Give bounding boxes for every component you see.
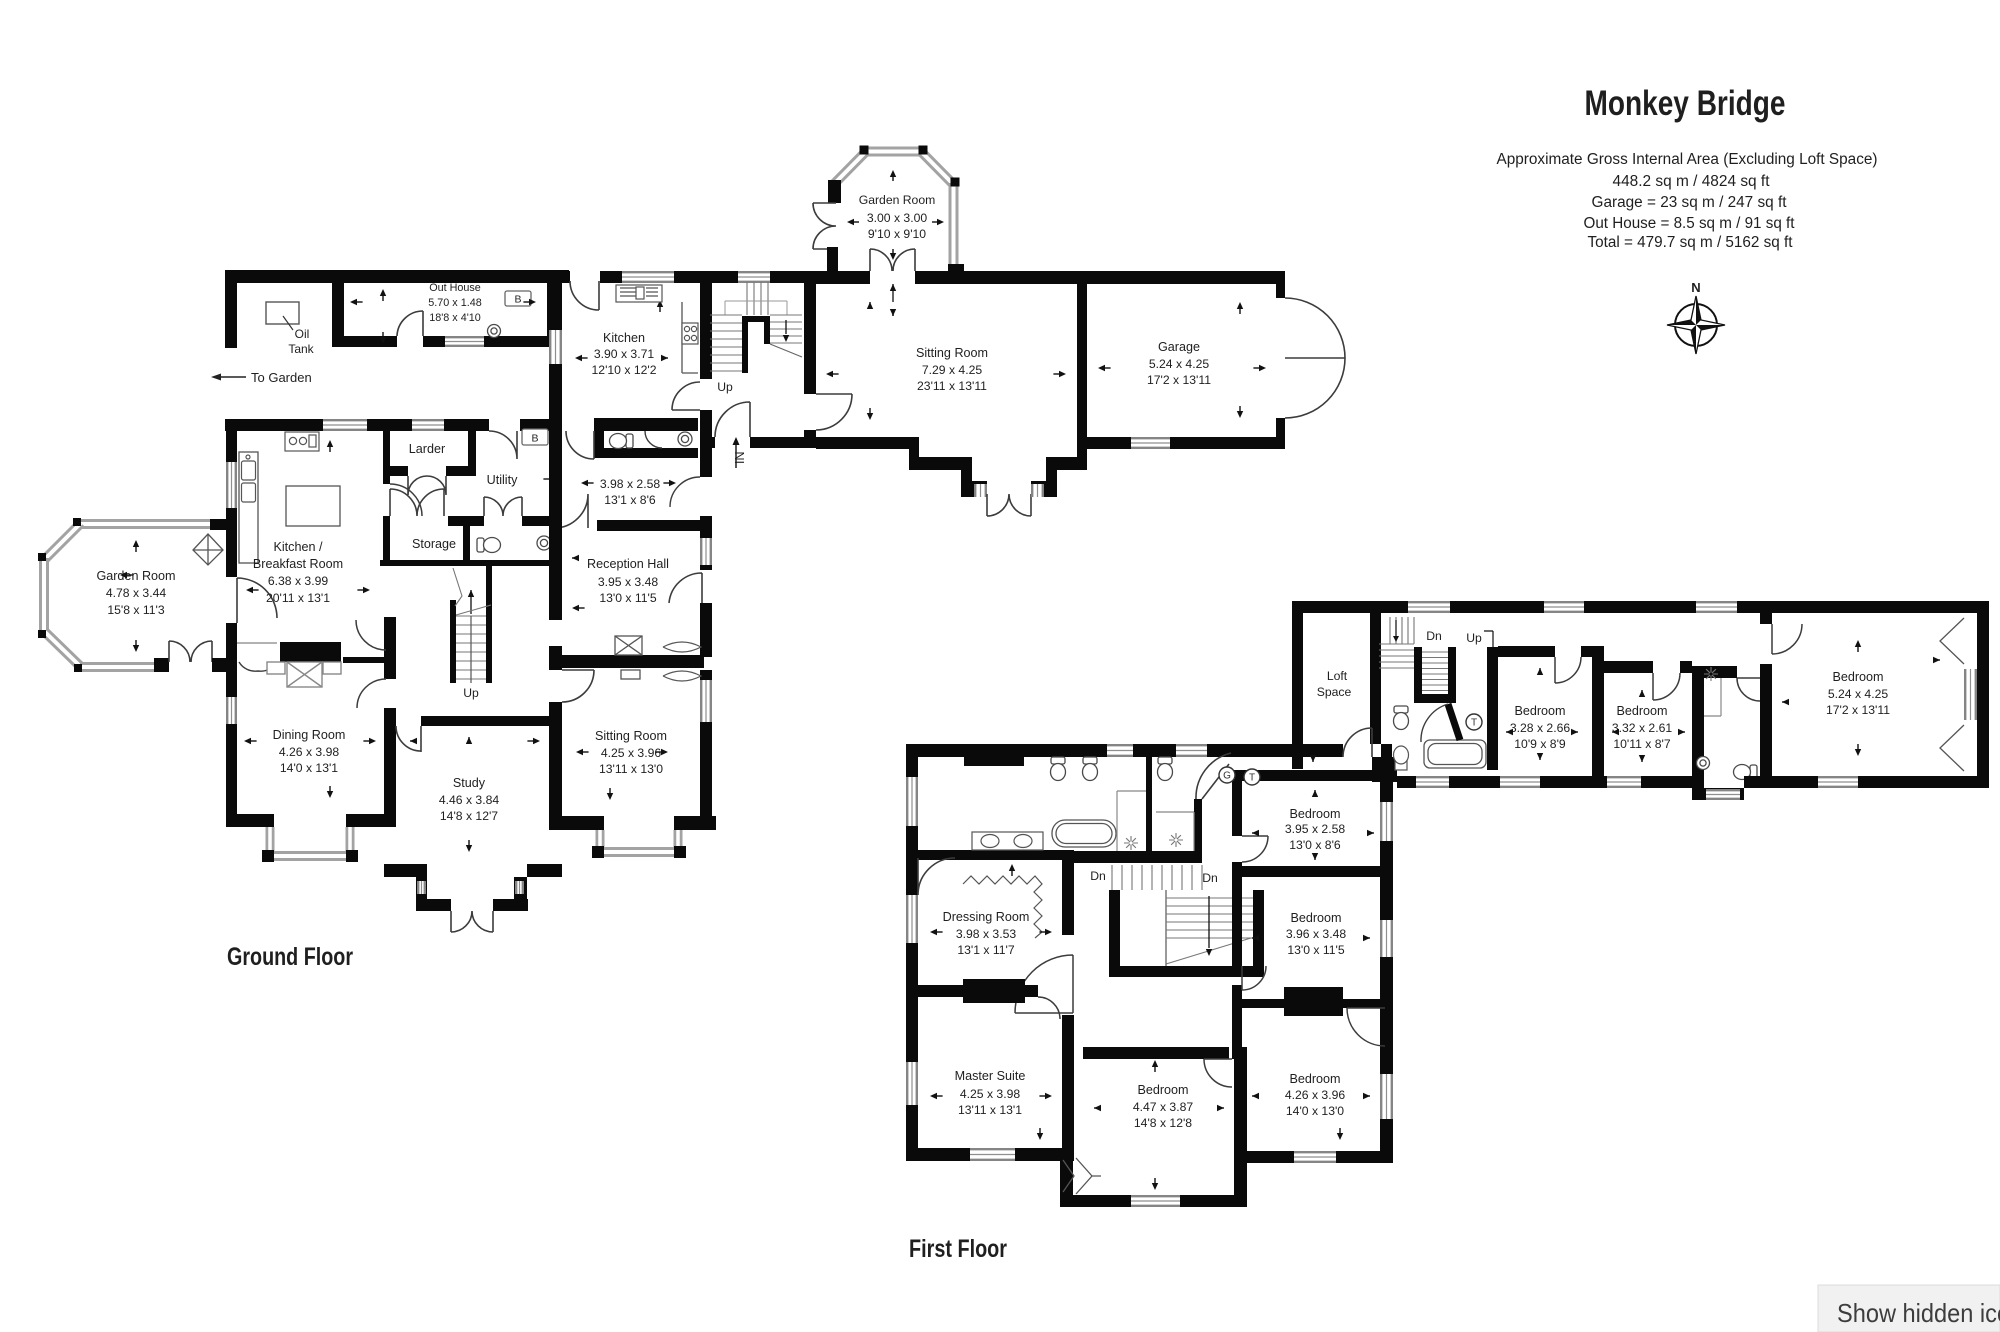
- svg-text:17'2 x 13'11: 17'2 x 13'11: [1826, 703, 1890, 717]
- svg-text:Sitting Room: Sitting Room: [595, 729, 667, 743]
- svg-text:3.95 x 2.58: 3.95 x 2.58: [1285, 822, 1346, 836]
- svg-text:Dn: Dn: [1426, 629, 1442, 643]
- svg-text:Kitchen /: Kitchen /: [273, 540, 323, 554]
- svg-text:9'10 x 9'10: 9'10 x 9'10: [868, 227, 926, 241]
- svg-text:IN: IN: [733, 452, 747, 465]
- svg-text:3.32 x 2.61: 3.32 x 2.61: [1612, 721, 1673, 735]
- svg-text:First Floor: First Floor: [909, 1235, 1007, 1263]
- svg-text:6.38 x 3.99: 6.38 x 3.99: [268, 574, 329, 588]
- svg-text:Bedroom: Bedroom: [1289, 1072, 1340, 1086]
- svg-text:To Garden: To Garden: [251, 370, 312, 385]
- svg-text:23'11 x 13'11: 23'11 x 13'11: [917, 379, 987, 393]
- svg-text:G: G: [1223, 771, 1231, 782]
- svg-text:Study: Study: [453, 776, 486, 790]
- svg-text:Bedroom: Bedroom: [1137, 1083, 1188, 1097]
- svg-text:Bedroom: Bedroom: [1289, 807, 1340, 821]
- svg-text:Garage = 23 sq m / 247 sq ft: Garage = 23 sq m / 247 sq ft: [1592, 194, 1788, 211]
- svg-text:Dn: Dn: [1090, 869, 1106, 883]
- svg-text:Oil: Oil: [295, 327, 310, 341]
- svg-text:Larder: Larder: [409, 442, 445, 456]
- svg-text:Master Suite: Master Suite: [955, 1069, 1026, 1083]
- svg-text:Garage: Garage: [1158, 340, 1200, 354]
- svg-text:Loft: Loft: [1327, 669, 1348, 683]
- svg-text:5.24 x 4.25: 5.24 x 4.25: [1149, 357, 1210, 371]
- svg-text:20'11 x 13'1: 20'11 x 13'1: [266, 591, 330, 605]
- svg-text:Space: Space: [1317, 685, 1352, 699]
- svg-text:15'8 x 11'3: 15'8 x 11'3: [107, 603, 165, 617]
- svg-text:13'11 x 13'1: 13'11 x 13'1: [958, 1103, 1022, 1117]
- svg-text:Dn: Dn: [1202, 871, 1218, 885]
- svg-text:Up: Up: [463, 686, 479, 700]
- svg-text:Dining Room: Dining Room: [273, 728, 346, 742]
- svg-text:Out House = 8.5 sq m / 91 sq f: Out House = 8.5 sq m / 91 sq ft: [1584, 215, 1796, 232]
- svg-text:3.96 x 3.48: 3.96 x 3.48: [1286, 927, 1347, 941]
- svg-text:4.26 x 3.96: 4.26 x 3.96: [1285, 1088, 1346, 1102]
- svg-text:4.25 x 3.98: 4.25 x 3.98: [960, 1087, 1021, 1101]
- svg-text:Up: Up: [1466, 631, 1482, 645]
- svg-text:Tank: Tank: [288, 342, 314, 356]
- svg-text:4.78 x 3.44: 4.78 x 3.44: [106, 586, 167, 600]
- svg-text:4.46 x 3.84: 4.46 x 3.84: [439, 793, 500, 807]
- svg-text:3.28 x 2.66: 3.28 x 2.66: [1510, 721, 1571, 735]
- svg-text:Bedroom: Bedroom: [1832, 670, 1883, 684]
- svg-text:Storage: Storage: [412, 537, 456, 551]
- svg-text:448.2 sq m / 4824 sq ft: 448.2 sq m / 4824 sq ft: [1613, 173, 1771, 190]
- svg-text:17'2 x 13'11: 17'2 x 13'11: [1147, 373, 1211, 387]
- svg-text:Bedroom: Bedroom: [1616, 704, 1667, 718]
- svg-text:4.47 x 3.87: 4.47 x 3.87: [1133, 1100, 1194, 1114]
- svg-text:4.26 x 3.98: 4.26 x 3.98: [279, 745, 340, 759]
- svg-text:4.25 x 3.96: 4.25 x 3.96: [601, 746, 662, 760]
- svg-text:Bedroom: Bedroom: [1290, 911, 1341, 925]
- svg-text:3.98 x 2.58: 3.98 x 2.58: [600, 477, 661, 491]
- svg-text:3.00 x 3.00: 3.00 x 3.00: [867, 211, 928, 225]
- svg-text:Utility: Utility: [487, 473, 518, 487]
- svg-text:12'10 x 12'2: 12'10 x 12'2: [592, 363, 657, 377]
- svg-text:Monkey Bridge: Monkey Bridge: [1585, 84, 1786, 123]
- svg-text:Kitchen: Kitchen: [603, 331, 645, 345]
- svg-text:14'0 x 13'1: 14'0 x 13'1: [280, 761, 338, 775]
- svg-text:13'0 x 8'6: 13'0 x 8'6: [1289, 838, 1341, 852]
- svg-text:3.98 x 3.53: 3.98 x 3.53: [956, 927, 1017, 941]
- svg-text:Dressing Room: Dressing Room: [943, 910, 1030, 924]
- svg-text:18'8 x 4'10: 18'8 x 4'10: [429, 312, 481, 324]
- svg-text:3.95 x 3.48: 3.95 x 3.48: [598, 575, 659, 589]
- svg-text:14'8 x 12'8: 14'8 x 12'8: [1134, 1116, 1192, 1130]
- svg-text:14'0 x 13'0: 14'0 x 13'0: [1286, 1104, 1344, 1118]
- svg-text:10'11 x 8'7: 10'11 x 8'7: [1613, 737, 1671, 751]
- svg-text:13'1 x 8'6: 13'1 x 8'6: [604, 493, 656, 507]
- svg-text:T: T: [1471, 718, 1477, 729]
- svg-text:5.70 x 1.48: 5.70 x 1.48: [428, 297, 481, 309]
- svg-text:Ground Floor: Ground Floor: [227, 943, 353, 971]
- svg-text:3.90 x 3.71: 3.90 x 3.71: [594, 347, 655, 361]
- svg-text:Up: Up: [717, 380, 733, 394]
- svg-text:13'0 x 11'5: 13'0 x 11'5: [599, 591, 657, 605]
- svg-text:Bedroom: Bedroom: [1514, 704, 1565, 718]
- svg-text:B: B: [531, 433, 538, 445]
- svg-text:Garden Room: Garden Room: [96, 569, 175, 583]
- svg-text:13'11 x 13'0: 13'11 x 13'0: [599, 762, 663, 776]
- svg-text:13'1 x 11'7: 13'1 x 11'7: [957, 943, 1015, 957]
- svg-text:13'0 x 11'5: 13'0 x 11'5: [1287, 943, 1345, 957]
- svg-text:N: N: [1691, 280, 1700, 295]
- svg-text:Show hidden icons: Show hidden icons: [1837, 1298, 2000, 1328]
- svg-text:T: T: [1249, 773, 1255, 784]
- svg-text:Reception Hall: Reception Hall: [587, 557, 669, 571]
- svg-text:5.24 x 4.25: 5.24 x 4.25: [1828, 687, 1889, 701]
- svg-text:Out House: Out House: [429, 282, 481, 294]
- svg-text:Total = 479.7 sq m / 5162 sq f: Total = 479.7 sq m / 5162 sq ft: [1588, 234, 1794, 251]
- svg-text:Sitting Room: Sitting Room: [916, 346, 988, 360]
- svg-text:14'8 x 12'7: 14'8 x 12'7: [440, 809, 498, 823]
- svg-text:B: B: [514, 294, 521, 306]
- svg-text:10'9 x 8'9: 10'9 x 8'9: [1514, 737, 1566, 751]
- svg-text:7.29 x 4.25: 7.29 x 4.25: [922, 363, 983, 377]
- svg-text:Breakfast Room: Breakfast Room: [253, 557, 343, 571]
- svg-text:Garden Room: Garden Room: [859, 193, 936, 207]
- svg-text:Approximate Gross Internal Are: Approximate Gross Internal Area (Excludi…: [1497, 151, 1878, 168]
